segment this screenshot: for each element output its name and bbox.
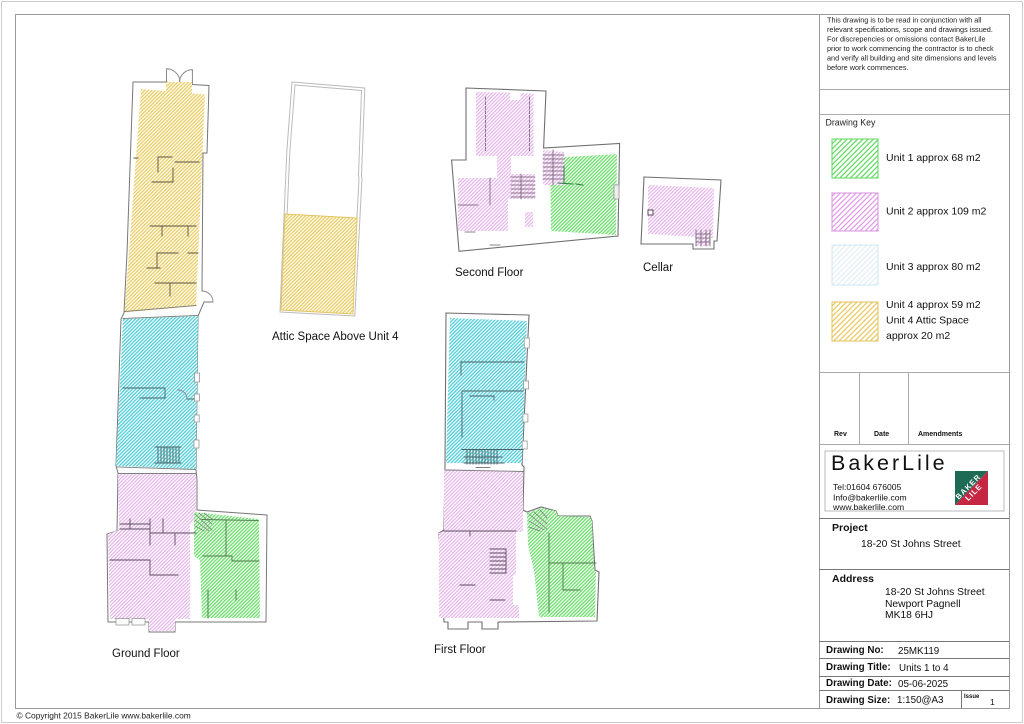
svg-text:Second Floor: Second Floor <box>455 267 524 279</box>
svg-text:before work commences.: before work commences. <box>827 63 909 72</box>
svg-text:prior to work commencing the c: prior to work commencing the contractor … <box>827 44 994 53</box>
svg-text:First Floor: First Floor <box>434 644 486 656</box>
svg-text:Unit 2 approx 109 m2: Unit 2 approx 109 m2 <box>886 206 987 218</box>
svg-text:Units 1 to 4: Units 1 to 4 <box>899 663 949 674</box>
svg-text:Attic Space Above Unit 4: Attic Space Above Unit 4 <box>272 331 399 343</box>
svg-text:This drawing is to be read in: This drawing is to be read in conjunctio… <box>827 16 982 25</box>
svg-text:Cellar: Cellar <box>643 262 673 274</box>
svg-text:Rev: Rev <box>834 431 847 438</box>
svg-text:Unit 4 approx 59 m2: Unit 4 approx 59 m2 <box>886 299 981 311</box>
svg-text:Drawing Title:: Drawing Title: <box>826 662 891 673</box>
svg-text:Info@bakerlile.com: Info@bakerlile.com <box>833 493 907 503</box>
svg-text:Issue: Issue <box>964 694 980 700</box>
svg-text:© Copyright 2015 BakerLile ww: © Copyright 2015 BakerLile www.bakerlile… <box>17 711 191 721</box>
svg-text:For discrepencies or omissions: For discrepencies or omissions contact B… <box>827 35 986 44</box>
svg-text:Drawing Size:: Drawing Size: <box>826 695 890 706</box>
svg-text:Date: Date <box>874 431 889 438</box>
svg-text:1:150@A3: 1:150@A3 <box>897 695 944 706</box>
svg-text:Tel:01604 676005: Tel:01604 676005 <box>833 482 902 492</box>
svg-text:Project: Project <box>832 522 868 534</box>
svg-text:25MK119: 25MK119 <box>898 646 939 657</box>
svg-text:Unit 3 approx 80 m2: Unit 3 approx 80 m2 <box>886 261 981 273</box>
svg-text:MK18 6HJ: MK18 6HJ <box>885 610 933 621</box>
svg-text:05-06-2025: 05-06-2025 <box>898 679 949 690</box>
svg-text:Newport Pagnell: Newport Pagnell <box>885 599 961 610</box>
svg-text:Drawing Date:: Drawing Date: <box>826 678 892 689</box>
svg-text:Drawing Key: Drawing Key <box>826 118 876 128</box>
svg-text:Unit 1 approx 68 m2: Unit 1 approx 68 m2 <box>886 152 981 164</box>
svg-text:Ground Floor: Ground Floor <box>112 648 180 660</box>
svg-text:www.bakerlile.com: www.bakerlile.com <box>832 502 904 512</box>
svg-text:1: 1 <box>990 697 995 707</box>
svg-text:BakerLile: BakerLile <box>831 451 948 475</box>
svg-text:Unit 4 Attic Space: Unit 4 Attic Space <box>886 315 969 327</box>
svg-text:Amendments: Amendments <box>918 431 962 438</box>
svg-text:Address: Address <box>832 573 874 585</box>
svg-text:relevant specifications, scope: relevant specifications, scope and drawi… <box>827 25 993 34</box>
svg-text:Drawing No:: Drawing No: <box>826 645 884 656</box>
svg-text:18-20 St Johns Street: 18-20 St Johns Street <box>861 539 961 550</box>
svg-text:and verify all building and si: and verify all building and site dimensi… <box>827 54 997 63</box>
svg-text:18-20 St Johns Street: 18-20 St Johns Street <box>885 587 985 598</box>
svg-text:approx 20 m2: approx 20 m2 <box>886 330 950 342</box>
